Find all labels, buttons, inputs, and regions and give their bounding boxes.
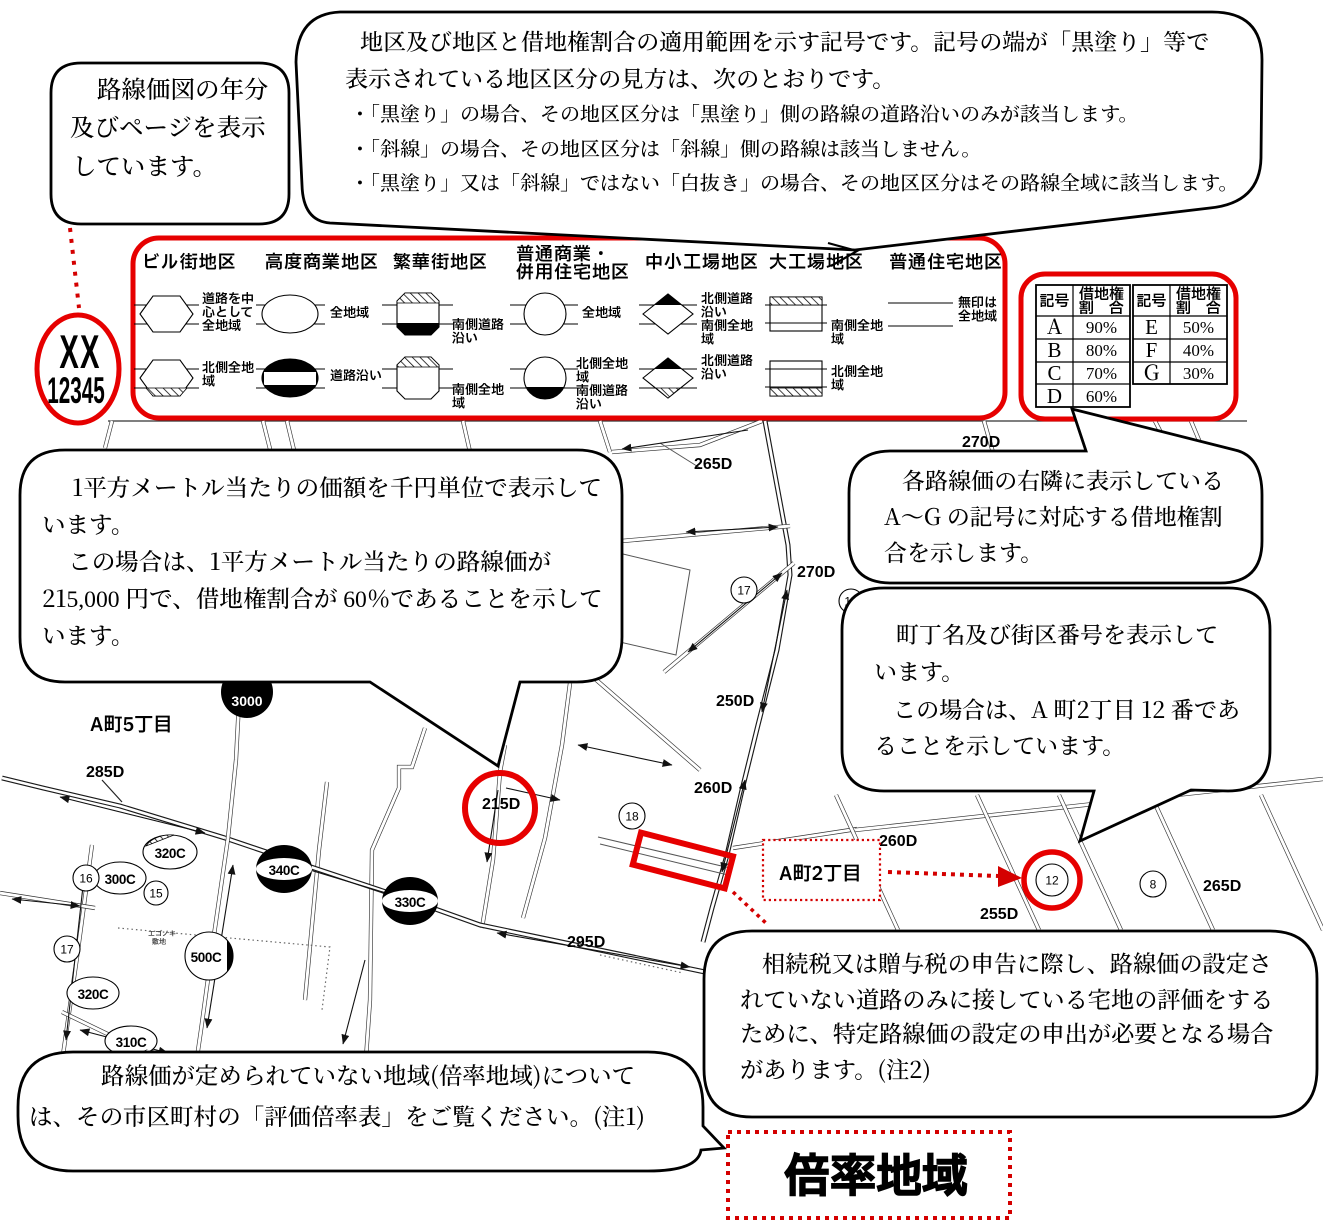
svg-text:3000: 3000 (231, 693, 262, 709)
svg-text:域: 域 (452, 394, 465, 414)
svg-text:地区及び地区と借地権割合の適用範囲を示す記号です。記号の端が: 地区及び地区と借地権割合の適用範囲を示す記号です。記号の端が「黒塗り」等で (360, 24, 1209, 57)
svg-text:G: G (1144, 357, 1160, 387)
svg-text:があります。(注2): があります。(注2) (740, 1051, 931, 1085)
svg-text:・「斜線」の場合、その地区区分は「斜線」側の路線は該当しませ: ・「斜線」の場合、その地区区分は「斜線」側の路線は該当しません。 (350, 133, 981, 162)
svg-text:265D: 265D (694, 456, 732, 473)
svg-text:90%: 90% (1086, 313, 1117, 338)
svg-text:17: 17 (60, 943, 74, 957)
svg-text:及びページを表示: 及びページを表示 (70, 109, 266, 144)
svg-text:285D: 285D (86, 764, 124, 781)
svg-text:域: 域 (202, 372, 215, 392)
svg-text:全地域: 全地域 (958, 307, 997, 327)
svg-text:250D: 250D (716, 693, 754, 710)
svg-text:60%: 60% (1086, 382, 1117, 407)
svg-text:全地域: 全地域 (330, 303, 369, 323)
svg-text:併用住宅地区: 併用住宅地区 (515, 259, 630, 286)
svg-text:倍率地域: 倍率地域 (784, 1144, 968, 1213)
svg-text:繁華街地区: 繁華街地区 (393, 249, 488, 276)
svg-text:295D: 295D (567, 934, 605, 951)
svg-text:A〜G の記号に対応する借地権割: A〜G の記号に対応する借地権割 (884, 499, 1223, 532)
svg-text:記号: 記号 (1039, 290, 1069, 313)
svg-text:敷地: 敷地 (152, 937, 166, 948)
svg-text:沿い: 沿い (452, 329, 478, 349)
svg-text:しています。: しています。 (72, 148, 217, 183)
svg-text:中小工場地区: 中小工場地区 (645, 249, 759, 276)
svg-text:相続税又は贈与税の申告に際し、路線価の設定さ: 相続税又は贈与税の申告に際し、路線価の設定さ (762, 945, 1272, 979)
svg-text:15: 15 (149, 887, 163, 901)
svg-text:ることを示しています。: ることを示しています。 (874, 728, 1125, 761)
svg-text:・「黒塗り」又は「斜線」ではない「白抜き」の場合、その地区区: ・「黒塗り」又は「斜線」ではない「白抜き」の場合、その地区区分はその路線全域に該… (350, 167, 1238, 196)
svg-text:70%: 70% (1086, 359, 1117, 384)
svg-text:この場合は、A 町2丁目 12 番であ: この場合は、A 町2丁目 12 番であ (893, 692, 1240, 725)
svg-text:全地域: 全地域 (582, 303, 621, 323)
svg-text:A町2丁目: A町2丁目 (779, 861, 861, 889)
svg-text:は、その市区町村の「評価倍率表」をご覧ください。(注1): は、その市区町村の「評価倍率表」をご覧ください。(注1) (29, 1098, 645, 1132)
svg-text:A町5丁目: A町5丁目 (90, 712, 172, 740)
svg-text:17: 17 (737, 584, 751, 598)
svg-text:260D: 260D (879, 833, 917, 850)
svg-text:215D: 215D (482, 796, 520, 813)
svg-text:215,000 円で、借地権割合が 60％であることを示して: 215,000 円で、借地権割合が 60％であることを示して (42, 580, 603, 614)
svg-text:大工場地区: 大工場地区 (769, 249, 864, 276)
svg-text:域: 域 (831, 330, 844, 350)
svg-text:40%: 40% (1183, 336, 1214, 361)
svg-text:この場合は、1平方メートル当たりの路線価が: この場合は、1平方メートル当たりの路線価が (68, 543, 551, 577)
svg-text:沿い: 沿い (576, 395, 602, 415)
svg-text:320C: 320C (78, 987, 109, 1002)
svg-text:255D: 255D (980, 906, 1018, 923)
svg-text:D: D (1047, 380, 1062, 410)
svg-text:ために、特定路線価の設定の申出が必要となる場合: ために、特定路線価の設定の申出が必要となる場合 (740, 1015, 1273, 1049)
svg-text:沿い: 沿い (701, 365, 727, 385)
svg-text:80%: 80% (1086, 336, 1117, 361)
svg-text:います。: います。 (42, 617, 135, 651)
svg-text:30%: 30% (1183, 359, 1214, 384)
svg-text:普通住宅地区: 普通住宅地区 (889, 249, 1003, 276)
svg-text:記号: 記号 (1136, 290, 1166, 313)
svg-text:330C: 330C (395, 895, 426, 910)
svg-text:路線価が定められていない地域(倍率地域)について: 路線価が定められていない地域(倍率地域)について (101, 1057, 635, 1091)
svg-text:路線価図の年分: 路線価図の年分 (97, 71, 269, 106)
svg-text:います。: います。 (874, 654, 964, 687)
svg-text:340C: 340C (269, 863, 300, 878)
svg-text:12345: 12345 (47, 371, 105, 412)
svg-text:町丁名及び街区番号を表示して: 町丁名及び街区番号を表示して (896, 617, 1218, 650)
svg-text:各路線価の右隣に表示している: 各路線価の右隣に表示している (902, 463, 1224, 496)
svg-text:50%: 50% (1183, 313, 1214, 338)
svg-text:域: 域 (701, 330, 714, 350)
svg-text:310C: 310C (116, 1035, 147, 1050)
svg-text:ビル街地区: ビル街地区 (142, 249, 237, 276)
svg-text:320C: 320C (155, 846, 186, 861)
svg-text:500C: 500C (191, 950, 222, 965)
svg-text:270D: 270D (962, 434, 1000, 451)
svg-text:全地域: 全地域 (202, 316, 241, 336)
svg-text:18: 18 (625, 810, 639, 824)
svg-text:表示されている地区区分の見方は、次のとおりです。: 表示されている地区区分の見方は、次のとおりです。 (345, 61, 895, 94)
svg-text:います。: います。 (42, 506, 135, 540)
svg-text:・「黒塗り」の場合、その地区区分は「黒塗り」側の路線の道路沿: ・「黒塗り」の場合、その地区区分は「黒塗り」側の路線の道路沿いのみが該当します。 (350, 98, 1138, 127)
svg-text:域: 域 (831, 376, 844, 396)
svg-text:合を示します。: 合を示します。 (884, 535, 1043, 568)
svg-text:れていない道路のみに接している宅地の評価をする: れていない道路のみに接している宅地の評価をする (740, 981, 1273, 1015)
svg-text:265D: 265D (1203, 878, 1241, 895)
svg-text:16: 16 (79, 872, 93, 886)
svg-text:高度商業地区: 高度商業地区 (265, 249, 379, 276)
svg-text:道路沿い: 道路沿い (330, 366, 382, 386)
svg-text:270D: 270D (797, 564, 835, 581)
svg-text:1平方メートル当たりの価額を千円単位で表示して: 1平方メートル当たりの価額を千円単位で表示して (72, 469, 602, 503)
svg-text:12: 12 (1045, 874, 1059, 888)
svg-text:8: 8 (1150, 878, 1157, 892)
svg-text:300C: 300C (105, 872, 136, 887)
svg-text:260D: 260D (694, 780, 732, 797)
